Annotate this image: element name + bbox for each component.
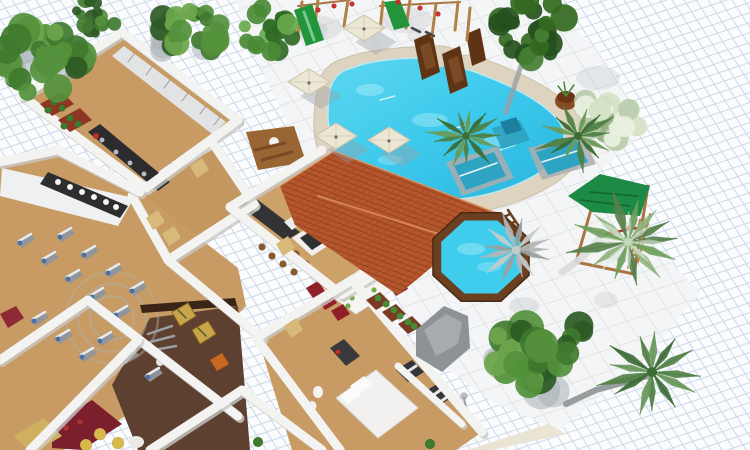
drum-table[interactable] [128,436,144,448]
toilet[interactable] [313,386,323,398]
desk-red-item[interactable] [336,350,341,355]
scene-canvas[interactable] [0,0,750,450]
counter-red-item[interactable] [93,133,99,139]
home-design-3d-viewport[interactable] [0,0,750,450]
